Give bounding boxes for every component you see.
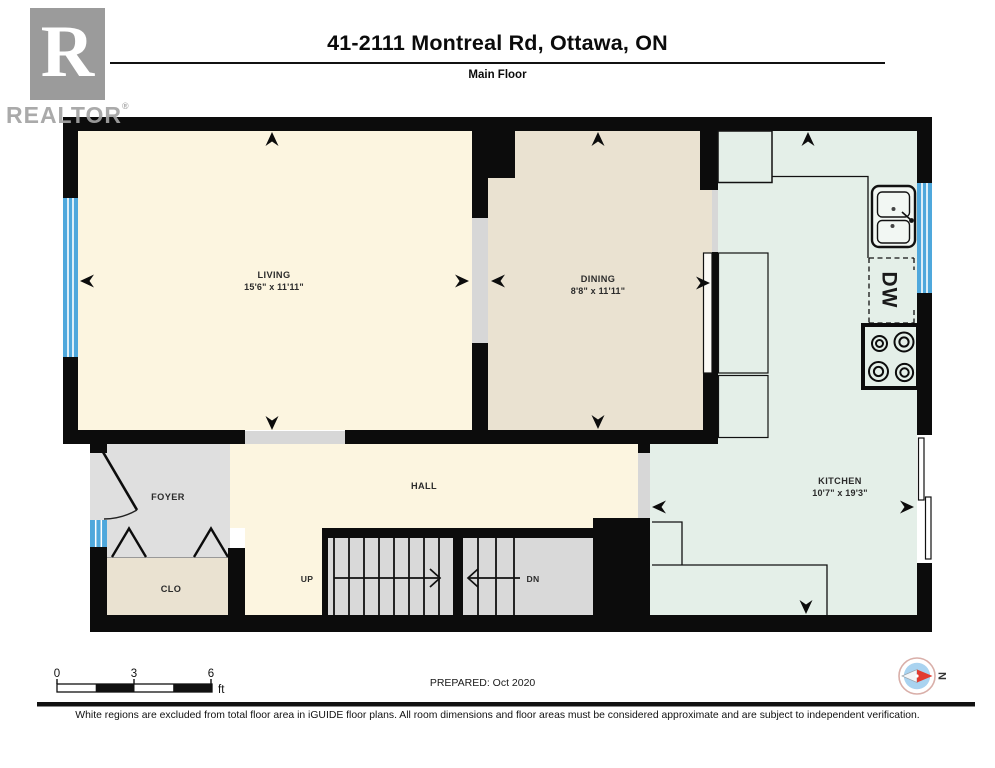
kitchen-window (917, 183, 932, 293)
closet-label: CLO (161, 584, 182, 594)
counter-dining-side (704, 253, 713, 373)
foyer-label: FOYER (151, 492, 185, 502)
counter-kitchen-side-upper (719, 253, 769, 373)
wall-left-upper (63, 117, 78, 198)
footer-rule (37, 702, 975, 707)
wall-dining-chase (488, 117, 515, 178)
wall-living-bottom-left (63, 430, 245, 444)
wall-stairs-top (322, 528, 593, 538)
dining-floor-strip (703, 190, 712, 253)
wall-living-dining-upper (472, 117, 488, 218)
hall-kitchen-opening (638, 453, 650, 518)
kitchen-label: KITCHEN (818, 476, 862, 486)
wall-closet-right (228, 548, 245, 632)
floorplan-page: DW (0, 0, 995, 768)
disclaimer-text: White regions are excluded from total fl… (0, 710, 995, 721)
wall-hall-kitchen-stub (638, 443, 650, 453)
wall-foyer-left-lower (90, 547, 107, 632)
dining-room-dims: 8'8" x 11'11" (571, 286, 625, 296)
wall-bottom-mid (345, 430, 718, 444)
floor-plan-svg: DW (0, 0, 995, 768)
prepared-date: PREPARED: Oct 2020 (0, 677, 965, 689)
living-window (63, 198, 78, 357)
counter-kitchen-side-lower (719, 376, 769, 438)
wall-right-upper (917, 117, 932, 183)
patio-sliding-door (917, 435, 932, 563)
living-dining-opening (472, 218, 488, 343)
wall-stairs-divider (453, 538, 463, 615)
living-room-label: LIVING (257, 270, 290, 280)
realtor-wordmark: REALTOR® (6, 101, 130, 129)
wall-living-dining-lower (472, 343, 488, 444)
registered-mark: ® (122, 101, 130, 111)
living-room-dims: 15'6" x 11'11" (244, 282, 304, 292)
stove-icon (863, 325, 918, 388)
wall-bottom (90, 615, 932, 632)
floor-name: Main Floor (0, 69, 995, 81)
hall-floor-lower (245, 528, 322, 615)
wall-foyer-door-stub (90, 444, 107, 453)
wall-stairs-left-edge (322, 538, 328, 615)
dining-kitchen-opening (712, 190, 718, 252)
wall-dining-kitchen-half (712, 252, 718, 373)
dishwasher-label: DW (878, 272, 901, 309)
living-hall-opening (245, 431, 345, 444)
stairs-up-label: UP (301, 574, 314, 584)
living-room-floor (78, 131, 472, 430)
stairs-down-label: DN (526, 574, 539, 584)
fridge-icon (718, 131, 772, 183)
hall-label: HALL (411, 481, 437, 491)
stairs-up-floor (328, 538, 453, 615)
page-title: 41-2111 Montreal Rd, Ottawa, ON (0, 31, 995, 56)
foyer-window (90, 520, 107, 547)
wall-stairs-right-block (593, 518, 650, 615)
wall-dining-kitchen-upper (700, 117, 718, 190)
wall-dining-kitchen-lower (703, 373, 718, 443)
title-divider (110, 62, 885, 64)
sink-icon (872, 186, 915, 247)
kitchen-dims: 10'7" x 19'3" (812, 488, 867, 498)
dining-room-label: DINING (581, 274, 616, 284)
